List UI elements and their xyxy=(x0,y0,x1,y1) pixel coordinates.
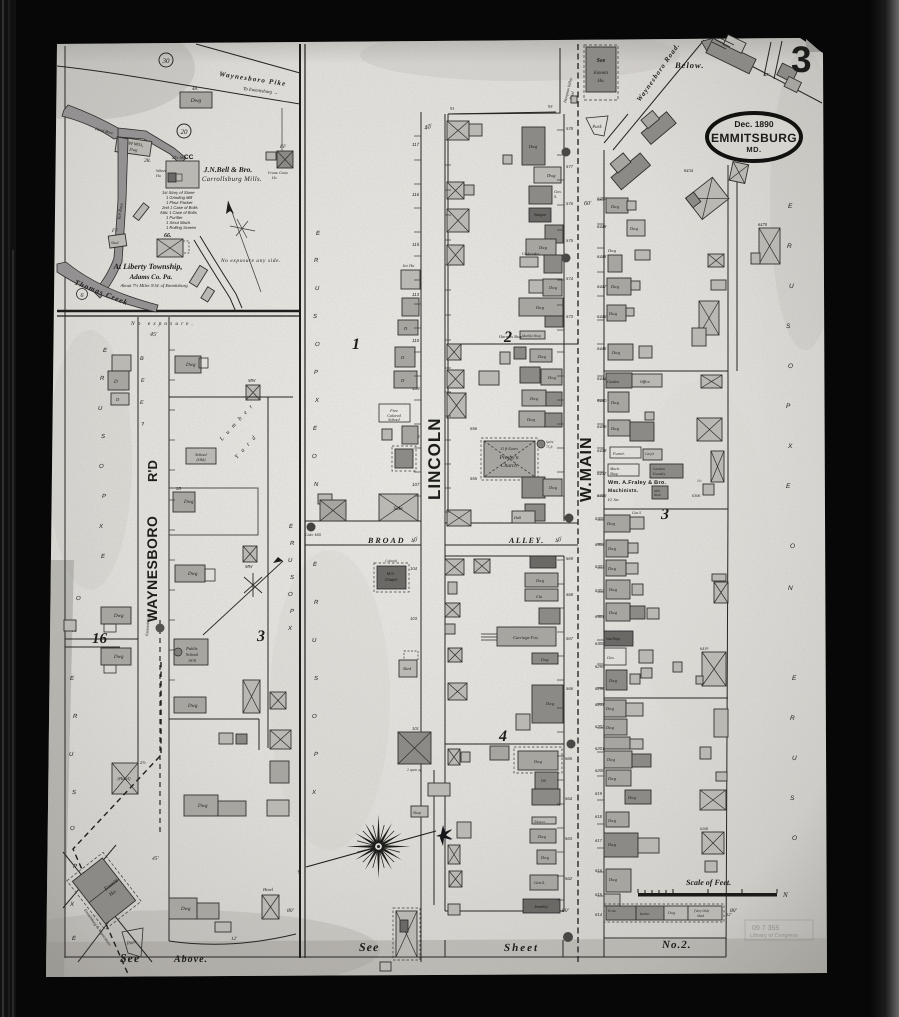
svg-text:R: R xyxy=(314,599,319,606)
svg-text:R'D: R'D xyxy=(145,460,160,482)
svg-text:6200: 6200 xyxy=(595,768,605,773)
svg-text:30: 30 xyxy=(162,57,171,65)
svg-text:Carrollsburg Mills.: Carrollsburg Mills. xyxy=(202,176,262,183)
svg-text:20: 20 xyxy=(181,128,189,136)
svg-text:N: N xyxy=(782,891,788,899)
svg-text:Gro.: Gro. xyxy=(607,655,615,660)
svg-text:Shed: Shed xyxy=(111,241,118,245)
svg-text:BROAD: BROAD xyxy=(367,536,406,545)
svg-text:O: O xyxy=(312,713,317,720)
svg-text:6298: 6298 xyxy=(595,686,605,691)
svg-text:R: R xyxy=(73,713,78,720)
svg-text:Dwg: Dwg xyxy=(180,906,191,912)
svg-text:563: 563 xyxy=(565,836,573,841)
svg-text:Carp't: Carp't xyxy=(645,452,655,456)
svg-text:Dwg: Dwg xyxy=(607,776,616,781)
svg-text:556: 556 xyxy=(470,426,478,431)
svg-text:Above.: Above. xyxy=(173,954,208,965)
svg-text:60': 60' xyxy=(584,201,592,207)
svg-text:P: P xyxy=(786,403,791,410)
svg-text:Dwg: Dwg xyxy=(667,911,675,915)
svg-text:Dwg: Dwg xyxy=(610,204,619,209)
svg-text:1½: 1½ xyxy=(697,479,702,483)
svg-text:Dwg: Dwg xyxy=(605,706,614,711)
svg-text:555: 555 xyxy=(470,476,478,481)
svg-text:6440: 6440 xyxy=(597,398,607,403)
svg-text:564: 564 xyxy=(565,796,573,801)
svg-text:80': 80' xyxy=(562,908,570,914)
svg-text:Dwg: Dwg xyxy=(548,485,557,490)
svg-text:School: School xyxy=(388,417,400,422)
svg-text:101: 101 xyxy=(412,726,419,731)
svg-text:Nat.Repr: Nat.Repr xyxy=(606,637,621,641)
svg-text:6439: 6439 xyxy=(597,424,607,429)
svg-text:3: 3 xyxy=(791,39,812,80)
svg-text:S: S xyxy=(313,313,317,320)
svg-text:Dwg: Dwg xyxy=(187,703,198,709)
svg-text:Dwg: Dwg xyxy=(610,426,619,431)
svg-text:Dwg: Dwg xyxy=(606,521,615,526)
svg-text:CC: CC xyxy=(184,154,194,161)
svg-text:No.2.: No.2. xyxy=(661,939,691,951)
svg-text:Dwg: Dwg xyxy=(610,400,619,405)
svg-text:2B: 2B xyxy=(176,486,181,491)
svg-text:S: S xyxy=(786,323,791,330)
svg-text:6300: 6300 xyxy=(595,641,605,646)
svg-text:Dwg: Dwg xyxy=(185,362,196,368)
svg-text:6436: 6436 xyxy=(597,493,607,498)
svg-text:Sale: Sale xyxy=(393,506,403,512)
svg-text:U: U xyxy=(792,755,797,762)
svg-text:Dwg: Dwg xyxy=(608,311,617,316)
svg-text:P: P xyxy=(314,751,318,758)
svg-text:16: 16 xyxy=(92,631,108,647)
svg-text:FF: FF xyxy=(111,228,119,234)
svg-text:O: O xyxy=(790,543,795,550)
svg-text:6446: 6446 xyxy=(597,314,607,319)
svg-text:113: 113 xyxy=(412,292,420,297)
svg-text:Dwg: Dwg xyxy=(113,654,124,660)
svg-text:3: 3 xyxy=(256,628,265,645)
svg-text:4: 4 xyxy=(498,728,507,745)
svg-text:U: U xyxy=(288,557,293,564)
svg-text:2 open of: 2 open of xyxy=(407,768,422,772)
svg-text:Shed: Shed xyxy=(403,666,412,671)
svg-text:No exposure.: No exposure. xyxy=(130,321,196,327)
svg-text:M.E.: M.E. xyxy=(387,571,395,576)
svg-text:E: E xyxy=(788,203,793,210)
svg-text:Dwg: Dwg xyxy=(606,757,615,762)
svg-text:Park: Park xyxy=(591,124,602,130)
svg-text:School: School xyxy=(186,652,199,657)
svg-text:P: P xyxy=(290,608,294,615)
svg-text:Sheet: Sheet xyxy=(504,942,539,954)
svg-text:574: 574 xyxy=(566,276,574,281)
svg-text:110: 110 xyxy=(412,338,420,343)
svg-text:W.MAIN: W.MAIN xyxy=(578,436,595,502)
svg-text:617: 617 xyxy=(595,838,603,843)
svg-text:91: 91 xyxy=(450,106,455,111)
svg-text:O: O xyxy=(76,595,81,602)
svg-text:Harness Shop: Harness Shop xyxy=(498,334,522,339)
svg-text:E: E xyxy=(140,400,144,406)
svg-text:6434: 6434 xyxy=(684,168,694,173)
svg-text:O: O xyxy=(312,453,317,460)
svg-text:Oil: Oil xyxy=(541,778,547,783)
svg-text:R: R xyxy=(314,257,319,264)
svg-text:Ho: Ho xyxy=(155,173,161,178)
svg-text:15 ft Eaves: 15 ft Eaves xyxy=(500,446,518,451)
svg-text:(Old): (Old) xyxy=(196,457,206,462)
svg-text:6444: 6444 xyxy=(597,376,607,381)
svg-text:Frame Grain: Frame Grain xyxy=(267,171,288,175)
svg-text:Dwg: Dwg xyxy=(538,245,547,250)
svg-text:567: 567 xyxy=(566,636,574,641)
svg-text:S.: S. xyxy=(554,194,557,199)
svg-text:O: O xyxy=(99,463,104,470)
svg-text:6449: 6449 xyxy=(597,224,607,229)
svg-text:Tobacco: Tobacco xyxy=(534,820,546,824)
svg-text:At Liberty Township,: At Liberty Township, xyxy=(113,262,183,271)
svg-text:O: O xyxy=(788,363,793,370)
svg-text:About 7½ Miles N.W. of Emmitsb: About 7½ Miles N.W. of Emmitsburg xyxy=(119,283,188,288)
svg-text:Dwg: Dwg xyxy=(607,546,616,551)
svg-text:El. Sm.: El. Sm. xyxy=(607,497,619,502)
svg-text:1878: 1878 xyxy=(188,658,196,663)
svg-text:Foundry: Foundry xyxy=(652,472,666,476)
svg-text:Dwg: Dwg xyxy=(526,417,535,422)
svg-text:6: 6 xyxy=(81,293,84,299)
svg-text:45': 45' xyxy=(152,856,160,862)
svg-text:6438: 6438 xyxy=(597,448,607,453)
svg-text:Dwg: Dwg xyxy=(610,284,619,289)
svg-text:6206: 6206 xyxy=(700,826,709,831)
svg-text:Dwg: Dwg xyxy=(627,795,636,800)
svg-text:107: 107 xyxy=(412,482,420,487)
svg-text:Machinists.: Machinists. xyxy=(608,488,639,494)
svg-text:Wm. A.Fraley & Bro.: Wm. A.Fraley & Bro. xyxy=(608,480,667,486)
svg-text:El.Sm: El.Sm xyxy=(607,909,617,913)
svg-text:O: O xyxy=(315,341,320,348)
svg-text:Dwg: Dwg xyxy=(611,350,620,355)
svg-text:Chapel: Chapel xyxy=(385,577,398,582)
svg-text:565: 565 xyxy=(565,756,573,761)
svg-text:576: 576 xyxy=(566,201,574,206)
svg-text:Dwg: Dwg xyxy=(190,98,202,104)
svg-text:Dwg: Dwg xyxy=(113,613,124,619)
svg-text:568: 568 xyxy=(566,592,574,597)
svg-text:R: R xyxy=(790,715,795,722)
svg-text:(Hotel): (Hotel) xyxy=(118,776,131,781)
svg-text:614: 614 xyxy=(595,912,603,917)
svg-text:Dwg: Dwg xyxy=(529,396,538,401)
svg-text:578: 578 xyxy=(566,126,574,131)
svg-text:P: P xyxy=(102,493,106,500)
svg-text:Office: Office xyxy=(640,379,650,384)
svg-text:6447: 6447 xyxy=(597,284,607,289)
svg-text:116: 116 xyxy=(412,192,420,197)
svg-text:573: 573 xyxy=(566,314,574,319)
svg-text:Below.: Below. xyxy=(674,60,705,70)
svg-text:45': 45' xyxy=(150,332,158,338)
svg-text:Furnit.: Furnit. xyxy=(612,451,625,456)
svg-text:Cla: Cla xyxy=(536,594,542,599)
svg-text:1 Rolling Screen: 1 Rolling Screen xyxy=(166,225,197,230)
svg-text:FF: FF xyxy=(279,144,287,150)
svg-text:X: X xyxy=(787,443,793,450)
svg-text:75 ft: 75 ft xyxy=(546,445,553,449)
svg-text:104: 104 xyxy=(410,566,418,571)
svg-text:6299: 6299 xyxy=(595,664,605,669)
svg-text:Church: Church xyxy=(501,463,518,469)
svg-text:618: 618 xyxy=(595,814,603,819)
svg-text:Dwg: Dwg xyxy=(607,248,616,253)
svg-text:Ice Ho: Ice Ho xyxy=(402,263,414,268)
svg-text:Undertaker: Undertaker xyxy=(522,252,540,256)
svg-text:U: U xyxy=(789,283,794,290)
svg-text:U: U xyxy=(98,405,103,412)
svg-text:MW: MW xyxy=(247,378,257,383)
svg-text:577: 577 xyxy=(566,164,574,169)
svg-text:Dwg: Dwg xyxy=(528,144,538,149)
svg-text:569: 569 xyxy=(566,556,574,561)
svg-text:48.: 48. xyxy=(192,86,198,92)
svg-text:1: 1 xyxy=(352,336,360,353)
svg-text:S: S xyxy=(101,433,105,440)
svg-text:Marble Shop: Marble Shop xyxy=(521,334,541,338)
svg-text:EMMITSBURG: EMMITSBURG xyxy=(711,131,797,145)
svg-text:6448: 6448 xyxy=(597,254,607,259)
svg-text:Dwg: Dwg xyxy=(183,499,194,505)
svg-text:Scale of Feet.: Scale of Feet. xyxy=(686,878,731,887)
svg-text:S: S xyxy=(790,795,795,802)
svg-text:P: P xyxy=(314,369,318,376)
svg-text:J.N.Bell & Bro.: J.N.Bell & Bro. xyxy=(203,165,253,174)
svg-text:See: See xyxy=(120,951,140,965)
svg-text:N: N xyxy=(314,481,319,488)
svg-text:Dec. 1890: Dec. 1890 xyxy=(734,119,773,129)
svg-text:Dwg: Dwg xyxy=(540,855,549,860)
svg-text:93: 93 xyxy=(548,104,553,109)
svg-text:S: S xyxy=(314,675,318,682)
svg-text:Wagon: Wagon xyxy=(534,213,546,217)
svg-text:Dwg: Dwg xyxy=(533,759,542,764)
svg-text:Barber: Barber xyxy=(640,912,650,916)
svg-text:Gen.S.: Gen.S. xyxy=(534,880,545,885)
svg-text:Dwg: Dwg xyxy=(607,842,616,847)
svg-text:6203: 6203 xyxy=(595,702,605,707)
svg-text:MD.: MD. xyxy=(746,145,761,154)
svg-text:(Very Old): (Very Old) xyxy=(694,909,710,913)
svg-text:MW: MW xyxy=(244,564,254,569)
svg-text:O: O xyxy=(70,825,75,832)
svg-text:Adams Co. Pa.: Adams Co. Pa. xyxy=(129,273,173,281)
svg-text:No exposure any side.: No exposure any side. xyxy=(220,258,281,264)
svg-text:2½: 2½ xyxy=(140,760,146,765)
svg-text:09 7 355: 09 7 355 xyxy=(752,925,779,932)
svg-text:Dwg: Dwg xyxy=(548,285,557,290)
svg-text:Carriage Fac.: Carriage Fac. xyxy=(513,635,539,640)
svg-text:Garden: Garden xyxy=(607,379,619,384)
svg-text:U: U xyxy=(69,751,74,758)
svg-text:Dwg: Dwg xyxy=(545,701,554,706)
svg-text:Work: Work xyxy=(654,493,662,497)
svg-text:Ho: Ho xyxy=(271,176,277,180)
svg-text:German: German xyxy=(653,467,665,471)
svg-text:O: O xyxy=(792,835,797,842)
svg-text:U: U xyxy=(315,285,320,292)
svg-text:Dwg: Dwg xyxy=(547,375,556,380)
svg-text:Dwg: Dwg xyxy=(605,725,614,730)
svg-text:Dwg: Dwg xyxy=(187,571,198,577)
svg-text:Shed: Shed xyxy=(697,914,704,918)
svg-text:See: See xyxy=(597,58,606,64)
svg-text:Dwg: Dwg xyxy=(608,587,617,592)
svg-text:N: N xyxy=(788,585,793,592)
svg-text:WAYNESBORO: WAYNESBORO xyxy=(144,516,160,622)
svg-text:Dwg: Dwg xyxy=(546,173,556,178)
svg-text:D: D xyxy=(113,379,118,385)
svg-text:Dwg: Dwg xyxy=(535,578,544,583)
svg-text:Hall: Hall xyxy=(513,515,522,520)
svg-text:6201: 6201 xyxy=(595,746,604,751)
svg-text:E: E xyxy=(141,378,145,384)
svg-text:562: 562 xyxy=(565,876,573,881)
svg-text:LINCOLN: LINCOLN xyxy=(425,417,444,500)
svg-text:28.: 28. xyxy=(144,158,151,164)
svg-text:Shop: Shop xyxy=(413,810,421,815)
svg-text:Dwg: Dwg xyxy=(629,226,638,231)
svg-text:Jewelry: Jewelry xyxy=(534,904,548,909)
svg-text:E: E xyxy=(792,675,797,682)
svg-text:619: 619 xyxy=(595,791,603,796)
svg-text:R: R xyxy=(787,243,792,250)
svg-text:6445: 6445 xyxy=(597,346,607,351)
svg-text:6478: 6478 xyxy=(758,222,768,227)
svg-text:Dwg: Dwg xyxy=(197,803,208,809)
svg-text:575: 575 xyxy=(566,238,574,243)
svg-text:66.: 66. xyxy=(164,233,172,239)
svg-text:566: 566 xyxy=(566,686,574,691)
svg-text:6419: 6419 xyxy=(700,646,709,651)
svg-text:S: S xyxy=(72,789,76,796)
svg-text:Shop: Shop xyxy=(610,471,618,476)
svg-text:Dwg: Dwg xyxy=(537,354,546,359)
svg-text:R: R xyxy=(290,540,295,547)
svg-text:Cider Mill: Cider Mill xyxy=(305,533,321,537)
svg-text:117: 117 xyxy=(412,142,420,147)
svg-text:Ho.: Ho. xyxy=(596,78,604,84)
svg-text:Emmitt: Emmitt xyxy=(593,70,609,76)
svg-text:6304: 6304 xyxy=(595,542,605,547)
svg-text:Dwg: Dwg xyxy=(608,610,617,615)
svg-text:S: S xyxy=(290,574,294,581)
svg-text:Spire: Spire xyxy=(546,440,554,444)
svg-text:6301: 6301 xyxy=(595,614,604,619)
svg-text:103: 103 xyxy=(410,616,418,621)
svg-text:E: E xyxy=(786,483,791,490)
svg-text:B: B xyxy=(140,356,144,362)
svg-text:12': 12' xyxy=(231,936,238,942)
svg-text:Library of Congress: Library of Congress xyxy=(750,933,798,939)
svg-text:115: 115 xyxy=(412,242,420,247)
svg-text:O: O xyxy=(288,591,293,598)
svg-text:Public: Public xyxy=(185,646,198,651)
svg-text:Dwg: Dwg xyxy=(540,657,549,662)
svg-text:U: U xyxy=(312,637,317,644)
svg-text:Presby'n: Presby'n xyxy=(499,455,519,461)
svg-text:Gen.S: Gen.S xyxy=(632,511,641,515)
svg-text:Dwg: Dwg xyxy=(607,818,616,823)
svg-text:Dwg: Dwg xyxy=(608,877,617,882)
svg-text:Colored: Colored xyxy=(385,559,397,563)
svg-text:80': 80' xyxy=(730,908,738,914)
svg-text:R: R xyxy=(100,375,105,382)
svg-text:Dwg: Dwg xyxy=(608,678,617,683)
svg-text:6306: 6306 xyxy=(692,493,701,498)
svg-text:Dwg: Dwg xyxy=(535,305,544,310)
svg-text:Dwg: Dwg xyxy=(537,834,546,839)
svg-text:ALLEY.: ALLEY. xyxy=(508,536,545,545)
svg-text:Hotel: Hotel xyxy=(262,887,274,892)
svg-text:Dwg: Dwg xyxy=(607,566,616,571)
svg-text:80': 80' xyxy=(287,908,295,914)
svg-text:See: See xyxy=(359,940,379,954)
